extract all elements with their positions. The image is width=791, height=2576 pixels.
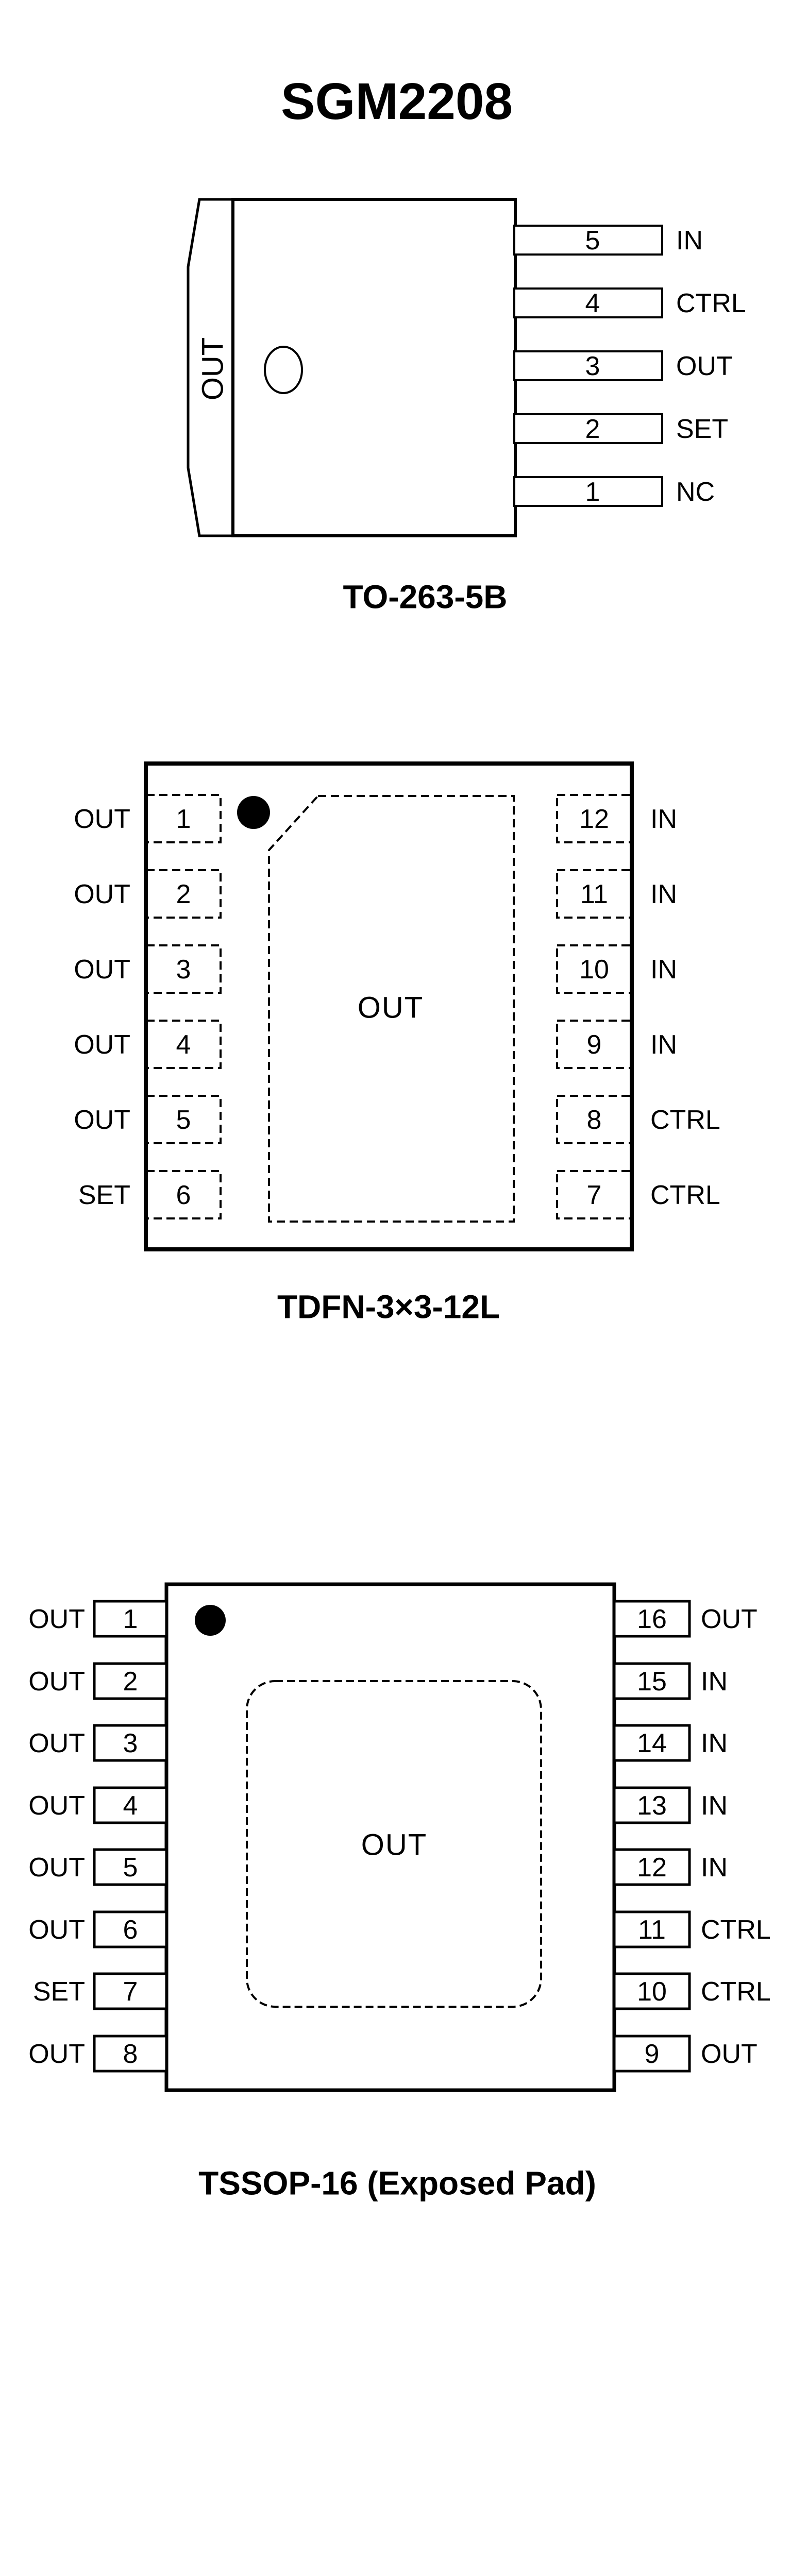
tssop-pin-12: 12 IN	[614, 1850, 728, 1885]
tssop-pin-9-number: 9	[645, 2039, 660, 2069]
to263-pin-5-label: IN	[676, 226, 703, 256]
tssop-pin-2-number: 2	[123, 1667, 138, 1697]
tssop-pin-10-label: CTRL	[701, 1977, 771, 2007]
tdfn-pin-6-number: 6	[176, 1180, 191, 1210]
tssop-pin-1-label: OUT	[28, 1604, 85, 1634]
tdfn-pin-7-label: CTRL	[650, 1180, 720, 1210]
tssop-pin-3-number: 3	[123, 1728, 138, 1758]
tdfn-package-diagram: OUT 1 OUT 2 OUT 3 OUT 4 OUT 5 OUT	[74, 764, 720, 1325]
tssop-pin-7: 7 SET	[33, 1974, 166, 2009]
tssop-pin1-dot-icon	[195, 1605, 226, 1636]
tssop-caption: TSSOP-16 (Exposed Pad)	[198, 2164, 596, 2201]
tssop-pin-11-label: CTRL	[701, 1915, 771, 1945]
page-title: SGM2208	[281, 73, 513, 130]
tdfn-pin-9-number: 9	[587, 1030, 602, 1060]
to263-pin-1-label: NC	[676, 477, 715, 507]
tdfn-pin-5-label: OUT	[74, 1105, 130, 1135]
tdfn-pin-1-number: 1	[176, 804, 191, 834]
to263-pin-3-number: 3	[585, 351, 600, 381]
tdfn-pin-10-label: IN	[650, 955, 677, 985]
tdfn-pin-8-label: CTRL	[650, 1105, 720, 1135]
tssop-exposed-pad-label: OUT	[361, 1828, 427, 1861]
tdfn-pin-9-label: IN	[650, 1030, 677, 1060]
to263-pin-4-number: 4	[585, 289, 600, 318]
to263-pin-3: 3 OUT	[514, 351, 733, 381]
tssop-pin-4-number: 4	[123, 1791, 138, 1821]
tssop-pin-16-number: 16	[637, 1604, 667, 1634]
tssop-pin-9-label: OUT	[701, 2039, 758, 2069]
to263-pin-4: 4 CTRL	[514, 289, 746, 318]
tdfn-pin-4-label: OUT	[74, 1030, 130, 1060]
tssop-pin-7-label: SET	[33, 1977, 85, 2007]
tssop-pin-4: 4 OUT	[28, 1788, 166, 1823]
tssop-pin-10-number: 10	[637, 1977, 667, 2007]
tssop-pin-6: 6 OUT	[28, 1912, 166, 1947]
to263-pin-2-number: 2	[585, 414, 600, 444]
tssop-pin-10: 10 CTRL	[614, 1974, 771, 2009]
tssop-pin-3: 3 OUT	[28, 1725, 166, 1760]
tssop-pin-13: 13 IN	[614, 1788, 728, 1823]
to263-pin-4-label: CTRL	[676, 289, 746, 318]
tssop-pin-15: 15 IN	[614, 1664, 728, 1699]
tdfn-pin-2-number: 2	[176, 879, 191, 909]
tssop-pin-12-number: 12	[637, 1853, 667, 1883]
tssop-pin-14-number: 14	[637, 1728, 667, 1758]
tssop-pin-14: 14 IN	[614, 1725, 728, 1760]
to263-pin-2: 2 SET	[514, 414, 728, 444]
tssop-pin-11: 11 CTRL	[614, 1912, 771, 1947]
tdfn-pin-6-label: SET	[78, 1180, 130, 1210]
tssop-pin-16-label: OUT	[701, 1604, 758, 1634]
tssop-pin-5: 5 OUT	[28, 1850, 166, 1885]
tdfn-pin-1-label: OUT	[74, 804, 130, 834]
to263-pin-1-number: 1	[585, 477, 600, 507]
tssop-pin-15-number: 15	[637, 1667, 667, 1697]
tssop-pin-8: 8 OUT	[28, 2036, 166, 2071]
tdfn-pin-5-number: 5	[176, 1105, 191, 1135]
tdfn-pin-2-label: OUT	[74, 879, 130, 909]
tssop-pin-11-number: 11	[638, 1915, 666, 1945]
tdfn-exposed-pad-label: OUT	[358, 991, 424, 1024]
tssop-pin-6-label: OUT	[28, 1915, 85, 1945]
to263-caption: TO-263-5B	[343, 578, 508, 615]
tdfn-pin-12-number: 12	[579, 804, 609, 834]
tssop-pin-4-label: OUT	[28, 1791, 85, 1821]
tdfn-pin-12-label: IN	[650, 804, 677, 834]
tssop-pin-13-label: IN	[701, 1791, 728, 1821]
tdfn-pin-3-number: 3	[176, 955, 191, 985]
to263-pin-3-label: OUT	[676, 351, 733, 381]
tssop-pin-2: 2 OUT	[28, 1664, 166, 1699]
tssop-pin-8-label: OUT	[28, 2039, 85, 2069]
tssop-pin-16: 16 OUT	[614, 1601, 758, 1636]
tssop-pin-2-label: OUT	[28, 1667, 85, 1697]
tdfn-pin1-dot-icon	[237, 796, 270, 829]
datasheet-page: SGM2208 OUT 5 IN 4 CTRL 3 OUT	[0, 0, 791, 2576]
to263-tab-label: OUT	[196, 337, 229, 400]
tssop-pin-5-label: OUT	[28, 1853, 85, 1883]
to263-pin-1: 1 NC	[514, 477, 715, 507]
tdfn-pin-7-number: 7	[587, 1180, 602, 1210]
tssop-pin-1-number: 1	[123, 1604, 138, 1634]
tdfn-pin-3-label: OUT	[74, 955, 130, 985]
to263-pin-5: 5 IN	[514, 226, 703, 256]
tdfn-pin-11-number: 11	[580, 879, 608, 909]
tdfn-pin-11-label: IN	[650, 879, 677, 909]
tssop-pin-7-number: 7	[123, 1977, 138, 2007]
tssop-pin-3-label: OUT	[28, 1728, 85, 1758]
tdfn-pin-10-number: 10	[579, 955, 609, 985]
to263-pin-2-label: SET	[676, 414, 728, 444]
tdfn-pin-4-number: 4	[176, 1030, 191, 1060]
tssop-pin-12-label: IN	[701, 1853, 728, 1883]
tssop-pin-15-label: IN	[701, 1667, 728, 1697]
tssop-pin-5-number: 5	[123, 1853, 138, 1883]
tdfn-pin-8-number: 8	[587, 1105, 602, 1135]
to263-body	[233, 199, 515, 536]
to263-package-diagram: OUT 5 IN 4 CTRL 3 OUT 2 SET 1	[188, 199, 746, 615]
tssop-pin-9: 9 OUT	[614, 2036, 758, 2071]
to263-pin-5-number: 5	[585, 226, 600, 256]
tssop-pin-1: 1 OUT	[28, 1601, 166, 1636]
tssop-pin-8-number: 8	[123, 2039, 138, 2069]
tdfn-caption: TDFN-3×3-12L	[277, 1288, 500, 1325]
tssop-pin-14-label: IN	[701, 1728, 728, 1758]
tssop-package-diagram: OUT 1 OUT 2 OUT 3 OUT 4 OUT 5 OUT	[28, 1584, 771, 2201]
tssop-pin-13-number: 13	[637, 1791, 667, 1821]
tssop-pin-6-number: 6	[123, 1915, 138, 1945]
